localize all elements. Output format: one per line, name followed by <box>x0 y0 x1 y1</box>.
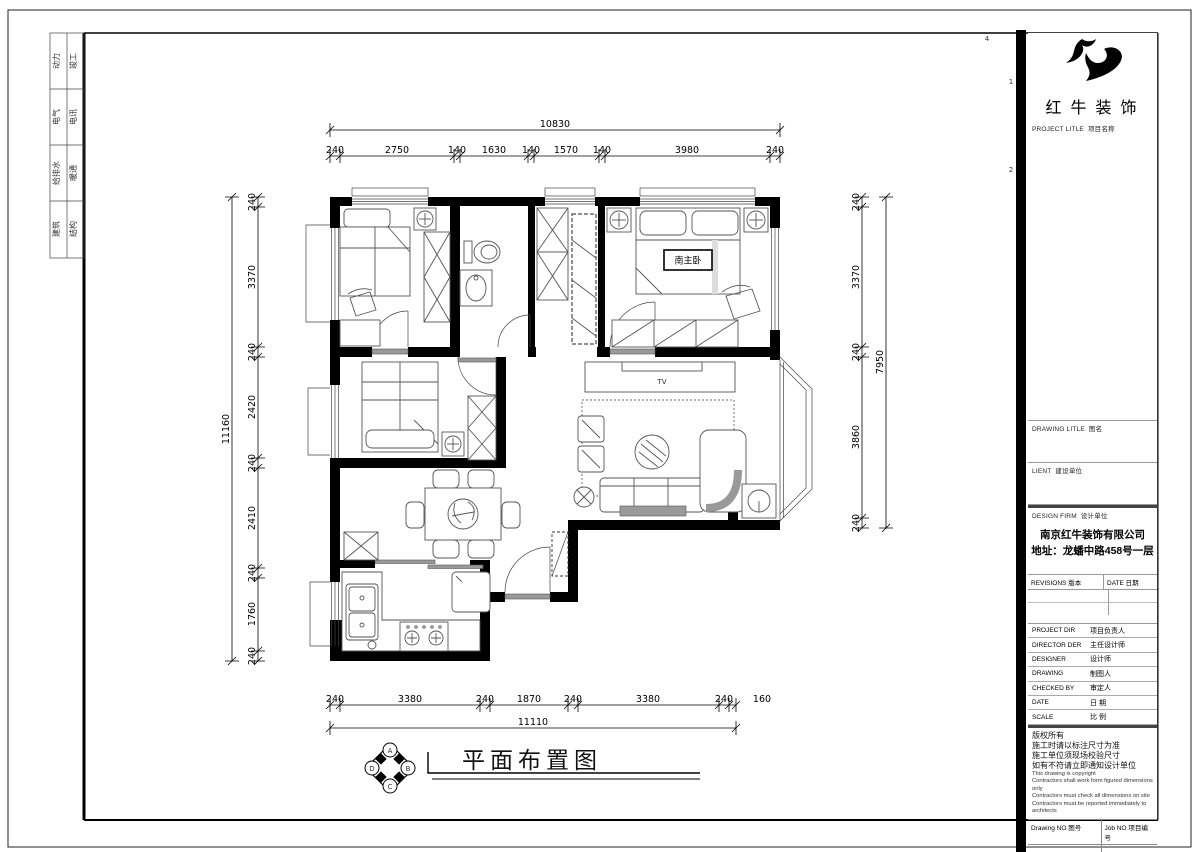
svg-text:140: 140 <box>593 145 611 156</box>
dining-chair <box>468 470 494 488</box>
bedroom1-furniture <box>340 208 450 346</box>
svg-text:3370: 3370 <box>851 265 862 289</box>
compass-symbol: A B C D <box>365 743 415 793</box>
dining-chair <box>433 470 459 488</box>
design-firm-field: DESIGN FIRM设计单位 南京红牛装饰有限公司 地址：龙蟠中路458号一层 <box>1028 508 1157 560</box>
drawing-sheet: 动力 竣工 电气 电讯 给排水 暖通 建筑 结构 4 1 2 <box>0 0 1200 852</box>
signoff-cell: 电气 <box>51 109 61 125</box>
signoff-cell: 给排水 <box>51 161 61 185</box>
svg-text:160: 160 <box>753 694 771 705</box>
bedroom2-furniture <box>362 362 496 460</box>
dimension-bottom: 240 3380 240 1870 240 3380 240 160 11110 <box>326 694 771 735</box>
revisions-table: REVISIONS 版本 DATE 日期 <box>1028 574 1157 624</box>
signoff-cell: 暖通 <box>68 165 78 181</box>
personnel-rows: PROJECT DIR项目负责人 DIRECTOR DER主任设计师 DESIG… <box>1028 624 1157 725</box>
sheet-title-text: 平面布置图 <box>462 748 602 774</box>
master-bedroom-furniture: 南主卧 <box>607 208 768 347</box>
svg-text:240: 240 <box>247 454 258 472</box>
signoff-table: 动力 竣工 电气 电讯 给排水 暖通 建筑 结构 <box>50 33 84 258</box>
pillow <box>692 211 738 235</box>
svg-text:240: 240 <box>715 694 733 705</box>
dimension-left: 11160 240 3370 240 2420 240 2410 240 176… <box>221 193 265 665</box>
dining-chair <box>468 540 494 558</box>
pillow <box>366 430 434 448</box>
svg-text:140: 140 <box>448 145 466 156</box>
svg-text:1870: 1870 <box>517 694 541 705</box>
svg-text:1570: 1570 <box>554 145 578 156</box>
kitchen-sliding-door <box>375 560 435 564</box>
grid-reference-numbers: 4 1 2 <box>985 35 1013 174</box>
toilet <box>474 241 500 263</box>
dining-chair <box>502 502 520 528</box>
tall-closet <box>572 214 596 344</box>
svg-text:2: 2 <box>1009 166 1013 174</box>
svg-text:4: 4 <box>985 35 990 43</box>
signoff-cell: 电讯 <box>68 109 78 125</box>
svg-text:240: 240 <box>247 343 258 361</box>
svg-text:240: 240 <box>247 564 258 582</box>
svg-text:3860: 3860 <box>851 425 862 449</box>
dining-chair <box>406 502 424 528</box>
svg-text:240: 240 <box>247 647 258 665</box>
svg-text:2420: 2420 <box>247 395 258 419</box>
svg-text:240: 240 <box>476 694 494 705</box>
master-bedroom-label: 南主卧 <box>674 255 701 267</box>
svg-text:240: 240 <box>851 514 862 532</box>
svg-text:D: D <box>369 765 374 773</box>
brand-header: 红牛装饰 <box>1028 33 1157 121</box>
tv-label: TV <box>656 378 666 386</box>
svg-text:3380: 3380 <box>398 694 422 705</box>
personnel-row: CHECKED BY审定人 <box>1028 682 1157 696</box>
titleblock-divider-bar <box>1016 30 1026 852</box>
redbull-logo-icon <box>1058 37 1128 89</box>
company-name: 南京红牛装饰有限公司 <box>1028 528 1157 544</box>
drawing-number-cells <box>1028 844 1157 852</box>
svg-text:240: 240 <box>247 193 258 211</box>
svg-text:3380: 3380 <box>636 694 660 705</box>
tv <box>622 362 702 371</box>
toilet-tank <box>464 241 472 263</box>
svg-text:11160: 11160 <box>221 414 232 444</box>
wardrobe <box>468 396 496 460</box>
svg-text:240: 240 <box>326 694 344 705</box>
svg-text:240: 240 <box>851 343 862 361</box>
brand-name: 红牛装饰 <box>1028 94 1157 118</box>
client-field: LIENT建设单位 <box>1028 463 1157 505</box>
dimension-right: 240 3370 240 3860 240 7950 <box>851 193 893 532</box>
personnel-row: DIRECTOR DER主任设计师 <box>1028 638 1157 652</box>
svg-text:240: 240 <box>851 193 862 211</box>
kitchen-sink <box>346 584 378 640</box>
desk <box>340 320 380 346</box>
svg-text:240: 240 <box>326 145 344 156</box>
floor-plan-canvas: 动力 竣工 电气 电讯 给排水 暖通 建筑 结构 4 1 2 <box>0 0 1200 852</box>
signoff-cell: 结构 <box>68 221 78 237</box>
living-room-furniture: TV <box>574 362 776 518</box>
svg-text:1: 1 <box>1009 78 1013 86</box>
pillow <box>640 211 686 235</box>
svg-text:10830: 10830 <box>540 119 570 130</box>
personnel-row: SCALE比 例 <box>1028 710 1157 724</box>
svg-text:3980: 3980 <box>675 145 699 156</box>
svg-text:240: 240 <box>766 145 784 156</box>
kitchen-furniture <box>342 572 490 651</box>
svg-text:3370: 3370 <box>247 265 258 289</box>
personnel-row: DESIGNER设计师 <box>1028 653 1157 667</box>
svg-text:C: C <box>388 783 393 791</box>
svg-text:11110: 11110 <box>518 717 548 728</box>
svg-text:A: A <box>388 747 393 755</box>
personnel-row: PROJECT DIR项目负责人 <box>1028 624 1157 638</box>
company-address: 地址：龙蟠中路458号一层 <box>1028 544 1157 560</box>
svg-text:2750: 2750 <box>385 145 409 156</box>
svg-text:1630: 1630 <box>482 145 506 156</box>
svg-text:1760: 1760 <box>247 602 258 626</box>
dining-chair <box>433 540 459 558</box>
dining-furniture <box>344 470 520 560</box>
sofa-front-rug <box>620 506 686 516</box>
dimension-top: 10830 240 2750 140 1630 140 1570 140 398… <box>326 119 784 163</box>
title-block: 红牛装饰 PROJECT LITLE项目名称 DRAWING LITLE图名 L… <box>1028 33 1158 820</box>
project-title-field: PROJECT LITLE项目名称 <box>1028 121 1157 421</box>
svg-text:140: 140 <box>522 145 540 156</box>
drawing-number-row: Drawing NO 图号 Job NO 项目编号 <box>1028 819 1157 844</box>
signoff-cell: 建筑 <box>51 221 61 237</box>
drawing-title-field: DRAWING LITLE图名 <box>1028 421 1157 463</box>
wardrobe <box>424 232 450 322</box>
personnel-row: DATE日 期 <box>1028 696 1157 710</box>
svg-text:B: B <box>406 765 411 773</box>
signoff-cell: 动力 <box>51 53 61 69</box>
coffee-table <box>635 435 669 469</box>
svg-text:7950: 7950 <box>875 350 886 374</box>
svg-text:2410: 2410 <box>247 506 258 530</box>
copyright-notes: 版权所有 施工时请以标注尺寸为准 施工单位须现场校验尺寸 如有不符请立即通知设计… <box>1028 728 1157 819</box>
pillow <box>344 209 390 227</box>
bathroom-fixtures <box>460 241 500 306</box>
hall-cabinets <box>537 208 596 344</box>
sheet-title: 平面布置图 <box>428 748 700 779</box>
svg-text:240: 240 <box>564 694 582 705</box>
signoff-cell: 竣工 <box>68 53 78 69</box>
personnel-row: DRAWING制图人 <box>1028 667 1157 681</box>
